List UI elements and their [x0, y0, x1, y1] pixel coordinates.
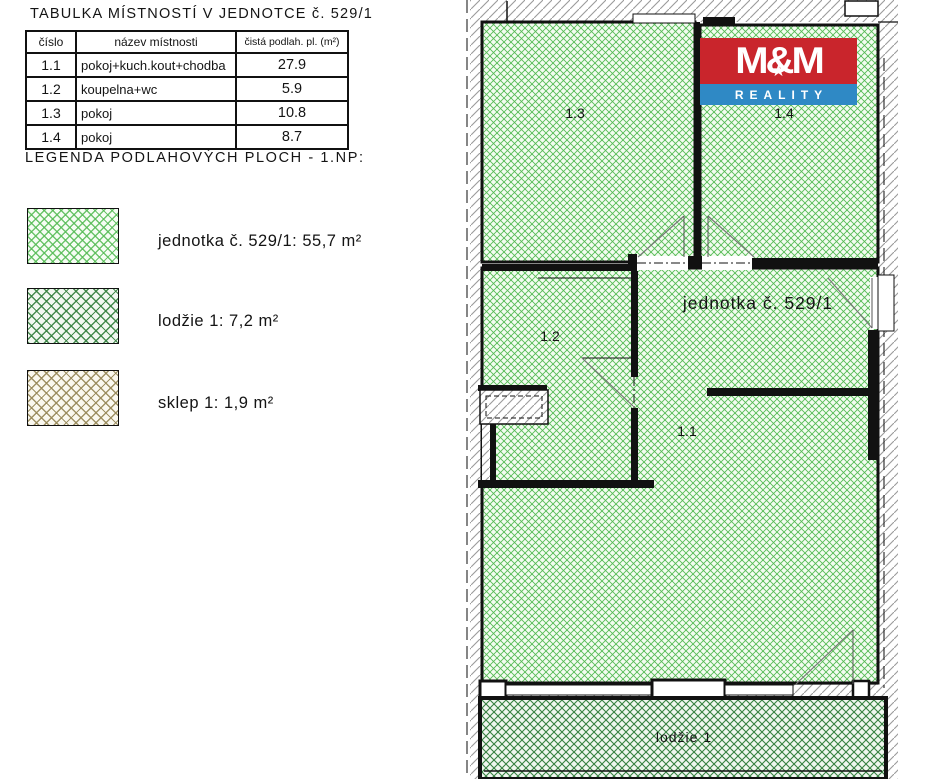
page-title: TABULKA MÍSTNOSTÍ V JEDNOTCE č. 529/1: [30, 6, 373, 22]
room-number: 1.4: [26, 125, 76, 149]
logo-blue-band: REALITY: [700, 84, 857, 105]
shaft-hatch-strip: [482, 424, 490, 480]
floor-plan: 1.3 1.4 1.2 1.1 jednotka č. 529/1 lodžie…: [462, 0, 936, 779]
corridor-area: [496, 423, 637, 480]
legend-swatch-unit: [27, 208, 119, 264]
logo-red-box: M&M ★: [700, 38, 857, 84]
legend-title: LEGENDA PODLAHOVÝCH PLOCH - 1.NP:: [25, 150, 365, 166]
shaft-niche: [480, 390, 548, 424]
room-area: 8.7: [236, 125, 348, 149]
table-row: 1.4 pokoj 8.7: [26, 125, 348, 149]
room-area: 10.8: [236, 101, 348, 125]
mm-reality-logo: M&M ★ REALITY: [700, 38, 857, 105]
table-header-row: číslo název místnosti čistá podlah. pl. …: [26, 31, 348, 53]
room-area: 5.9: [236, 77, 348, 101]
label-room-1-2: 1.2: [540, 328, 560, 344]
room-number: 1.2: [26, 77, 76, 101]
room-name: pokoj: [76, 125, 236, 149]
legend-swatch-balcony: [27, 288, 119, 344]
table-row: 1.1 pokoj+kuch.kout+chodba 27.9: [26, 53, 348, 77]
legend-label-unit: jednotka č. 529/1: 55,7 m²: [158, 232, 362, 251]
room-area: 27.9: [236, 53, 348, 77]
legend-swatch-cellar: [27, 370, 119, 426]
room-number: 1.1: [26, 53, 76, 77]
legend-label-cellar: sklep 1: 1,9 m²: [158, 394, 274, 413]
legend-label-balcony: lodžie 1: 7,2 m²: [158, 312, 279, 331]
room-1-3-area: [482, 22, 695, 262]
table-row: 1.3 pokoj 10.8: [26, 101, 348, 125]
col-header-number: číslo: [26, 31, 76, 53]
room-table: číslo název místnosti čistá podlah. pl. …: [25, 30, 349, 150]
col-header-name: název místnosti: [76, 31, 236, 53]
room-name: pokoj: [76, 101, 236, 125]
room-areas: [482, 22, 878, 683]
label-room-1-4: 1.4: [774, 105, 794, 121]
room-number: 1.3: [26, 101, 76, 125]
room-name: pokoj+kuch.kout+chodba: [76, 53, 236, 77]
label-unit: jednotka č. 529/1: [682, 293, 833, 313]
col-header-area: čistá podlah. pl. (m²): [236, 31, 348, 53]
logo-reality-text: REALITY: [729, 88, 828, 102]
label-room-1-1: 1.1: [677, 423, 697, 439]
label-balcony: lodžie 1: [656, 729, 712, 745]
table-row: 1.2 koupelna+wc 5.9: [26, 77, 348, 101]
label-room-1-3: 1.3: [565, 105, 585, 121]
star-icon: ★: [771, 62, 786, 79]
room-name: koupelna+wc: [76, 77, 236, 101]
